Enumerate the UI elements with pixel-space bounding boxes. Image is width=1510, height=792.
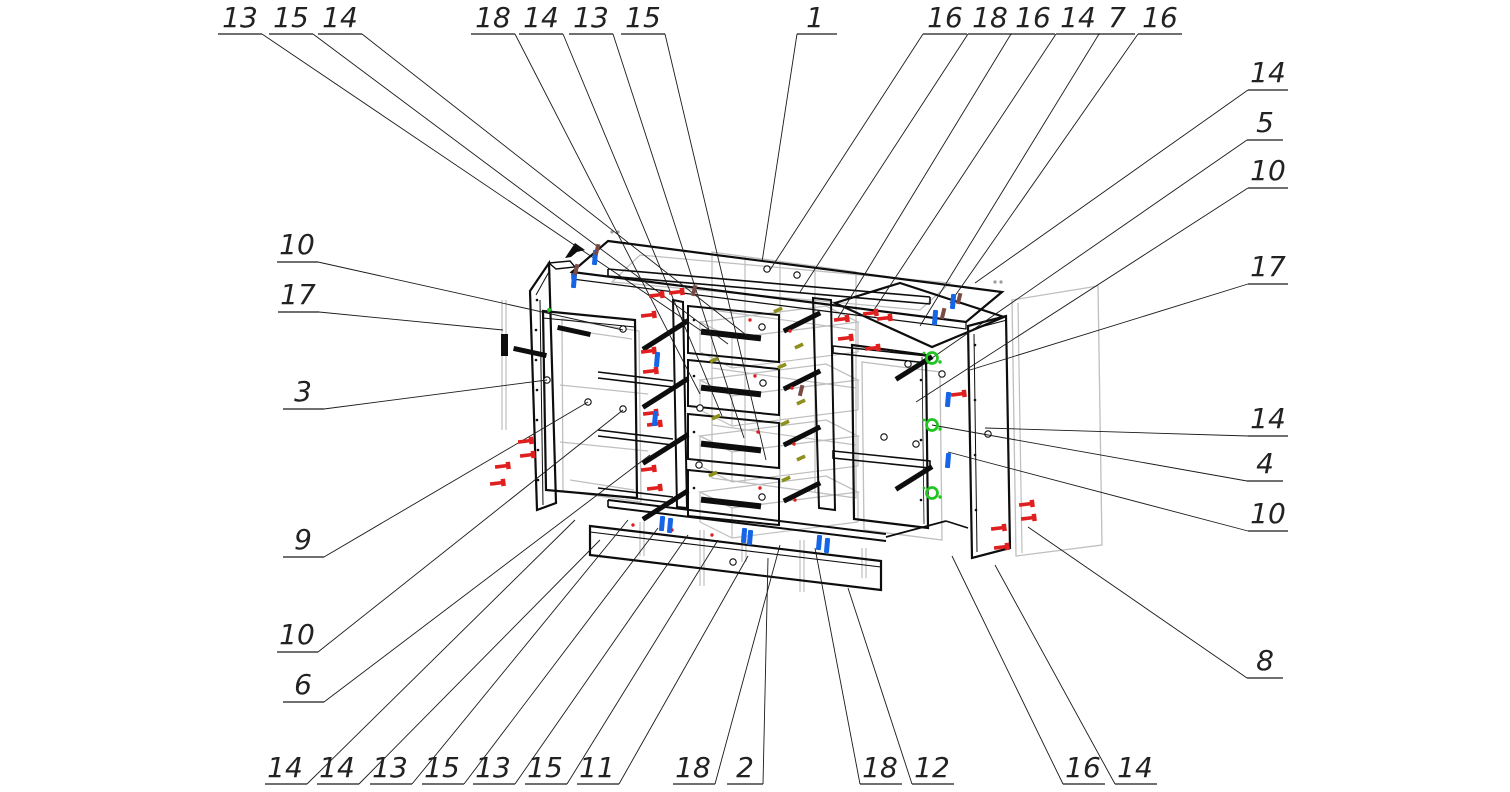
callout-number-17: 17 xyxy=(280,278,316,311)
callout-number-1: 1 xyxy=(806,1,824,34)
fastener-hole xyxy=(620,326,626,332)
callout-number-9: 9 xyxy=(294,523,312,556)
pin-hole-dot xyxy=(920,379,923,382)
screw-dot-icon xyxy=(631,523,634,526)
fastener-hole xyxy=(696,462,702,468)
screw-dot-icon xyxy=(753,374,756,377)
callout-number-10: 10 xyxy=(279,618,315,651)
pin-hole-dot xyxy=(974,454,977,457)
fastener-hole xyxy=(760,380,766,386)
cam-dot-icon xyxy=(923,352,926,355)
exploded-view-diagram: 1315141814131511618161471614510171441081… xyxy=(0,0,1510,792)
fastener-hole xyxy=(939,371,945,377)
fastener-hole xyxy=(764,266,770,272)
callout-number-15: 15 xyxy=(527,751,563,784)
callout-number-10: 10 xyxy=(1250,497,1286,530)
callout-number-15: 15 xyxy=(625,1,661,34)
callout-number-5: 5 xyxy=(1256,106,1274,139)
pin-hole-dot xyxy=(535,359,538,362)
screw-dot-icon xyxy=(756,430,759,433)
pin-hole-dot xyxy=(693,487,696,490)
callout-number-16: 16 xyxy=(1015,1,1051,34)
callout-number-16: 16 xyxy=(927,1,963,34)
fastener-hole xyxy=(794,272,800,278)
callout-number-18: 18 xyxy=(972,1,1008,34)
callout-number-13: 13 xyxy=(222,1,258,34)
callout-number-2: 2 xyxy=(736,751,754,784)
callout-number-8: 8 xyxy=(1256,644,1274,677)
pin-hole-dot xyxy=(975,509,978,512)
cam-dot-icon xyxy=(547,308,551,312)
fastener-hole xyxy=(913,441,919,447)
cam-dot-icon xyxy=(938,427,941,430)
callout-number-14: 14 xyxy=(319,751,355,784)
pin-hole-dot xyxy=(920,499,923,502)
cam-dot-icon xyxy=(938,495,941,498)
fastener-hole xyxy=(905,361,911,367)
pin-hole-dot xyxy=(536,299,539,302)
callout-number-14: 14 xyxy=(1250,402,1286,435)
cam-dot-icon xyxy=(923,487,926,490)
pin-hole-dot xyxy=(693,375,696,378)
callout-number-6: 6 xyxy=(294,668,312,701)
callout-number-15: 15 xyxy=(273,1,309,34)
reference-dot xyxy=(999,280,1002,283)
screw-dot-icon xyxy=(788,329,791,332)
pin-hole-dot xyxy=(974,399,977,402)
pin-hole-dot xyxy=(920,439,923,442)
callout-number-17: 17 xyxy=(1250,250,1286,283)
pin-hole-dot xyxy=(537,449,540,452)
screw-dot-icon xyxy=(793,498,796,501)
callout-number-11: 11 xyxy=(579,751,615,784)
fastener-hole xyxy=(759,494,765,500)
pin-hole-dot xyxy=(537,479,540,482)
callout-number-4: 4 xyxy=(1256,447,1274,480)
callout-number-14: 14 xyxy=(267,751,303,784)
callout-number-14: 14 xyxy=(322,1,358,34)
callout-number-18: 18 xyxy=(862,751,898,784)
callout-number-14: 14 xyxy=(1117,751,1153,784)
callout-number-16: 16 xyxy=(1065,751,1101,784)
screw-dot-icon xyxy=(790,386,793,389)
cam-dot-icon xyxy=(938,360,941,363)
screw-dot-icon xyxy=(758,486,761,489)
callout-number-13: 13 xyxy=(475,751,511,784)
exploded-assembly-drawing-page: 1315141814131511618161471614510171441081… xyxy=(0,0,1510,792)
reference-dot xyxy=(993,280,996,283)
pin-hole-dot xyxy=(693,431,696,434)
callout-number-14: 14 xyxy=(523,1,559,34)
fastener-hole xyxy=(881,434,887,440)
callout-number-14: 14 xyxy=(1060,1,1096,34)
fastener-hole xyxy=(759,324,765,330)
hinge-pin xyxy=(501,334,508,356)
callout-number-10: 10 xyxy=(279,228,315,261)
callout-number-13: 13 xyxy=(372,751,408,784)
cam-dot-icon xyxy=(923,419,926,422)
callout-number-14: 14 xyxy=(1250,56,1286,89)
callout-number-13: 13 xyxy=(573,1,609,34)
screw-dot-icon xyxy=(792,442,795,445)
pin-hole-dot xyxy=(536,389,539,392)
fastener-hole xyxy=(730,559,736,565)
callout-number-10: 10 xyxy=(1250,154,1286,187)
callout-number-16: 16 xyxy=(1142,1,1178,34)
pin-hole-dot xyxy=(536,419,539,422)
callout-number-18: 18 xyxy=(475,1,511,34)
callout-number-15: 15 xyxy=(424,751,460,784)
pin-hole-dot xyxy=(974,344,977,347)
pin-hole-dot xyxy=(535,329,538,332)
fastener-hole xyxy=(697,405,703,411)
callout-number-7: 7 xyxy=(1108,1,1126,34)
callout-number-18: 18 xyxy=(675,751,711,784)
screw-dot-icon xyxy=(748,318,751,321)
screw-dot-icon xyxy=(710,533,713,536)
callout-number-3: 3 xyxy=(294,375,312,408)
callout-number-12: 12 xyxy=(914,751,950,784)
fastener-hole xyxy=(985,431,991,437)
